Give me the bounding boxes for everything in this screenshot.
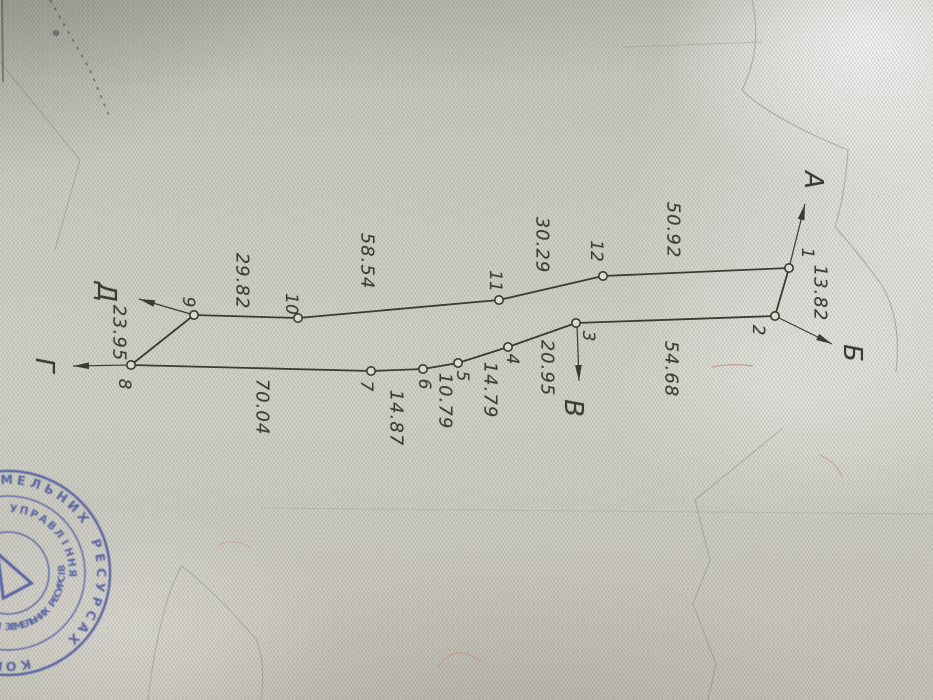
vertex-label: 6 <box>414 379 434 390</box>
photographed-document: КОМІТЕТ УКРАЇНИ ПО ЗЕМЕЛЬНИХ РЕСУРСАХОБЛ… <box>0 0 933 700</box>
segment-length-label: 58.54 <box>357 233 378 290</box>
vertex-label: 9 <box>178 297 198 308</box>
vertex-label: 12 <box>586 240 606 262</box>
vertex-label: 3 <box>578 331 598 342</box>
direction-letter: Г <box>29 358 59 373</box>
vertex-label: 1 <box>797 248 817 259</box>
segment-length-label: 20.95 <box>537 340 558 397</box>
direction-letter: Д <box>91 282 121 302</box>
segment-length-label: 23.95 <box>109 305 130 362</box>
segment-length-label: 14.87 <box>386 390 407 447</box>
plan-labels: 12345678910111213.8254.6820.9514.7910.79… <box>0 0 933 700</box>
direction-letter: В <box>558 399 588 417</box>
segment-length-label: 13.82 <box>810 265 831 322</box>
vertex-label: 4 <box>502 354 522 365</box>
segment-length-label: 50.92 <box>663 202 684 259</box>
segment-length-label: 29.82 <box>232 253 253 310</box>
segment-length-label: 10.79 <box>435 373 456 430</box>
vertex-label: 8 <box>114 379 134 390</box>
segment-length-label: 54.68 <box>661 341 682 398</box>
segment-length-label: 30.29 <box>532 217 553 274</box>
direction-letter: Б <box>837 344 867 362</box>
vertex-label: 11 <box>485 270 505 292</box>
vertex-label: 7 <box>356 381 376 392</box>
vertex-label: 2 <box>748 325 768 336</box>
segment-length-label: 70.04 <box>252 379 273 436</box>
vertex-label: 10 <box>281 293 301 315</box>
segment-length-label: 14.79 <box>480 362 501 419</box>
direction-letter: А <box>798 171 828 189</box>
